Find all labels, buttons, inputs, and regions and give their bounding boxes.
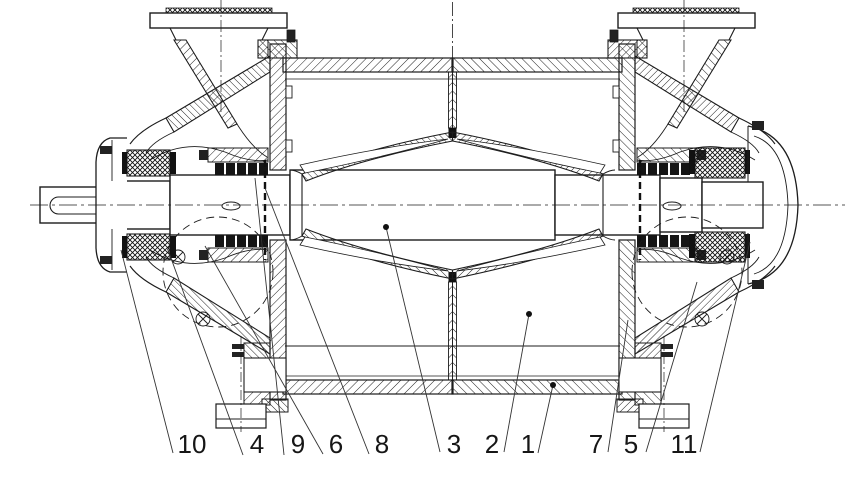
leader-4	[168, 250, 243, 455]
figure-canvas: 10 4 9 6 8 3 2 1 7 5 11	[0, 0, 862, 477]
part-label-3: 3	[447, 429, 461, 459]
ball-bearing-left	[127, 150, 170, 176]
leader-10	[121, 250, 173, 453]
leader-1	[538, 385, 553, 453]
part-label-8: 8	[375, 429, 389, 459]
part-label-4: 4	[250, 429, 264, 459]
part-label-9: 9	[291, 429, 305, 459]
part-label-10: 10	[178, 429, 207, 459]
pump-sectional-drawing: 10 4 9 6 8 3 2 1 7 5 11	[0, 0, 862, 477]
part-label-6: 6	[329, 429, 343, 459]
part-label-11: 11	[671, 429, 698, 459]
leader-11	[700, 242, 750, 452]
head-bolt	[287, 30, 295, 42]
part-label-1: 1	[521, 429, 535, 459]
part-callouts: 10 4 9 6 8 3 2 1 7 5 11	[178, 429, 698, 459]
part-label-7: 7	[589, 429, 603, 459]
part-label-5: 5	[624, 429, 638, 459]
ball-bearing-right	[695, 148, 745, 178]
guide-blade	[300, 237, 448, 271]
part-label-2: 2	[485, 429, 499, 459]
guide-blade	[300, 139, 448, 173]
